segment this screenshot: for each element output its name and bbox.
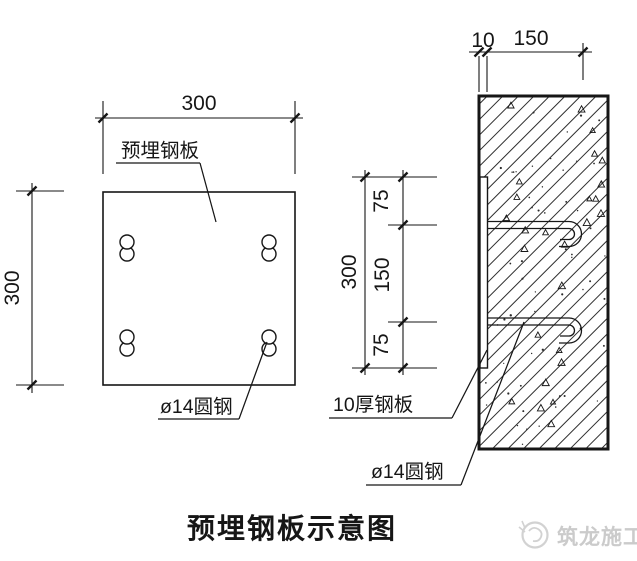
plan-height-dim-text: 300 (1, 270, 24, 305)
plan-plate-label: 预埋钢板 (121, 140, 199, 162)
drawing-canvas: 300 300 预埋钢板 ø14圆钢 (0, 0, 637, 561)
watermark-text: 筑龙施工 (557, 525, 637, 549)
plan-width-dim-text: 300 (181, 92, 216, 115)
plan-height-dimension: 300 (1, 183, 64, 393)
section-plate-outline (480, 177, 488, 368)
drawing-title: 预埋钢板示意图 (187, 512, 397, 544)
plate-thickness-dim-text: 10 (471, 29, 494, 52)
section-bottom-offset-dim-text: 75 (370, 333, 393, 356)
watermark: 筑龙施工 (519, 521, 637, 549)
plan-view: 300 300 预埋钢板 ø14圆钢 (1, 92, 303, 419)
zhulong-logo-icon (519, 521, 548, 548)
section-top-offset-dim-text: 75 (370, 189, 393, 212)
section-height-dimensions: 300 75 150 75 (338, 170, 437, 375)
concrete-hatch (479, 96, 608, 449)
section-plate-label: 10厚钢板 (333, 394, 413, 416)
section-top-dimension: 10 150 (469, 27, 592, 92)
section-total-height-dim-text: 300 (338, 254, 361, 289)
section-mid-spacing-dim-text: 150 (371, 257, 394, 292)
anchor-length-dim-text: 150 (513, 27, 548, 50)
section-plate-callout: 10厚钢板 (329, 350, 487, 418)
drawing-sheet: 300 300 预埋钢板 ø14圆钢 (0, 0, 637, 561)
section-view: 10 150 300 75 150 75 10厚钢板 (329, 27, 608, 485)
section-rod-label: ø14圆钢 (371, 461, 444, 483)
plan-rod-label: ø14圆钢 (160, 396, 233, 418)
